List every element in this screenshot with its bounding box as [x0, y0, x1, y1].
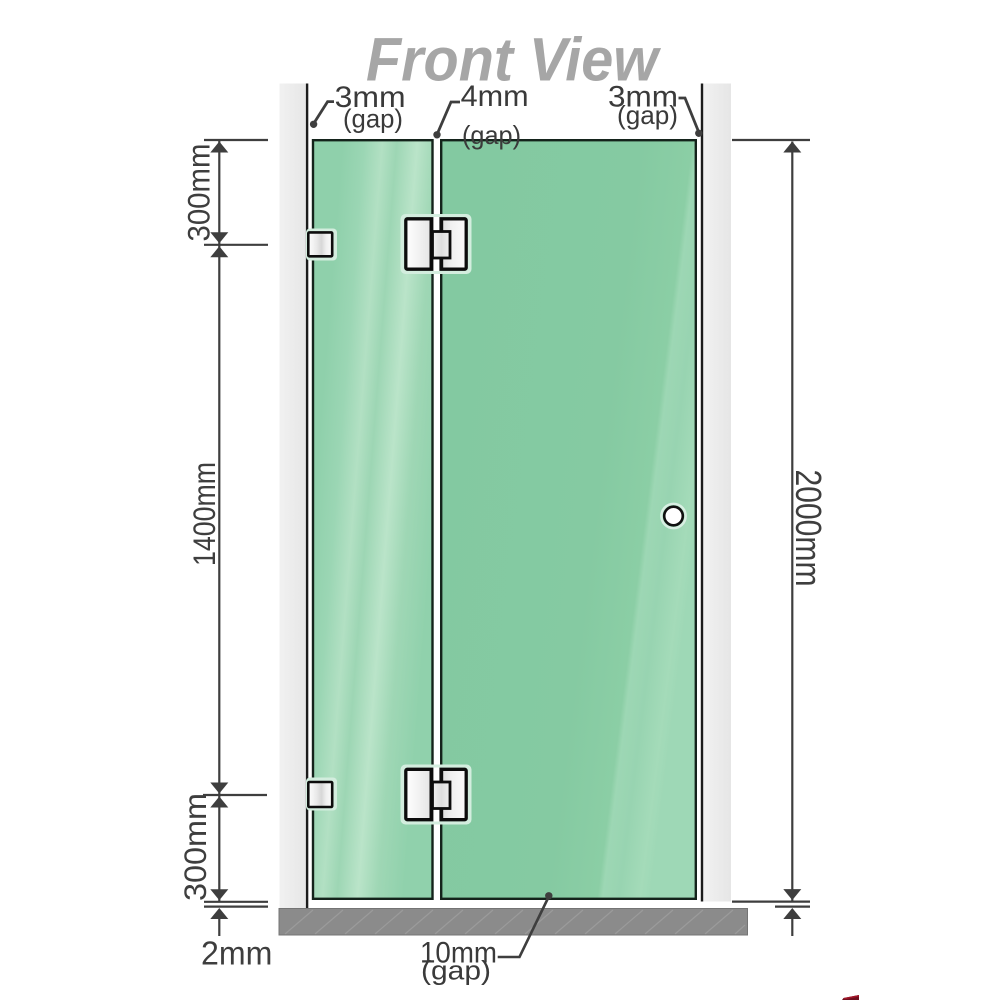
svg-text:(gap): (gap)	[462, 120, 521, 150]
svg-text:2mm: 2mm	[201, 935, 272, 972]
svg-text:1400mm: 1400mm	[186, 462, 222, 566]
svg-text:300mm: 300mm	[177, 793, 213, 901]
svg-text:300mm: 300mm	[181, 144, 217, 242]
svg-text:(gap): (gap)	[421, 956, 491, 986]
svg-text:(gap): (gap)	[617, 100, 678, 130]
svg-text:2000mm: 2000mm	[788, 470, 829, 587]
svg-text:(gap): (gap)	[343, 104, 403, 134]
svg-text:4mm: 4mm	[461, 80, 529, 113]
